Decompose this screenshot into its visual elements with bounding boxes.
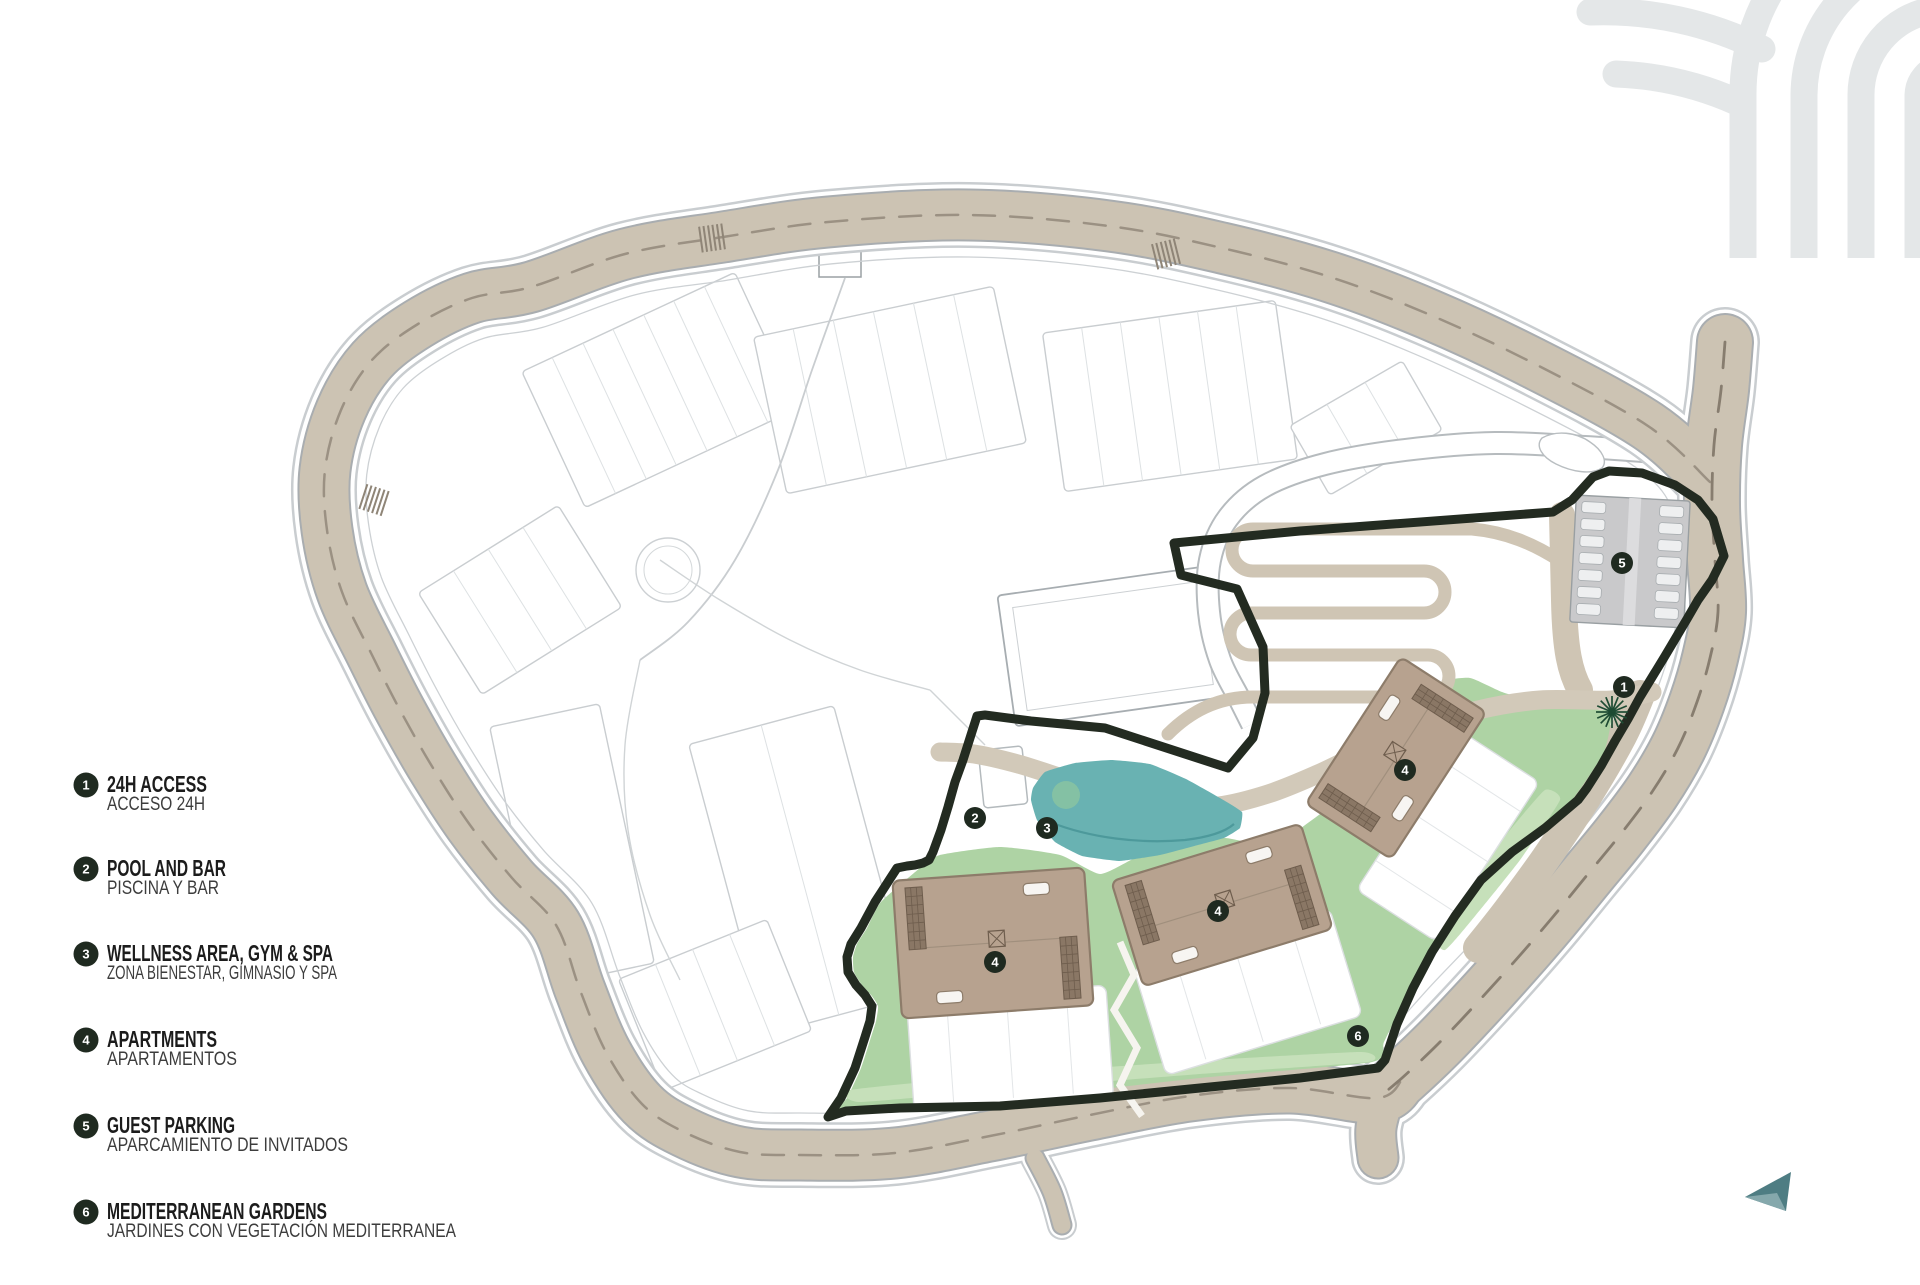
svg-text:5: 5	[82, 1119, 89, 1134]
svg-text:6: 6	[82, 1205, 89, 1220]
svg-text:ACCESO 24H: ACCESO 24H	[107, 793, 205, 815]
svg-text:ZONA BIENESTAR, GIMNASIO Y SPA: ZONA BIENESTAR, GIMNASIO Y SPA	[107, 962, 337, 984]
svg-text:1: 1	[1620, 680, 1627, 695]
svg-text:APARCAMIENTO DE INVITADOS: APARCAMIENTO DE INVITADOS	[107, 1134, 348, 1156]
svg-text:APARTAMENTOS: APARTAMENTOS	[107, 1048, 237, 1070]
svg-text:5: 5	[1618, 556, 1625, 571]
svg-text:2: 2	[82, 862, 89, 877]
svg-text:4: 4	[1401, 763, 1409, 778]
svg-text:PISCINA Y BAR: PISCINA Y BAR	[107, 877, 219, 899]
svg-text:1: 1	[82, 778, 89, 793]
svg-text:JARDINES CON VEGETACIÓN MEDITE: JARDINES CON VEGETACIÓN MEDITERRANEA	[107, 1219, 456, 1242]
svg-text:6: 6	[1354, 1029, 1361, 1044]
svg-text:4: 4	[82, 1033, 90, 1048]
svg-text:4: 4	[991, 955, 999, 970]
svg-text:2: 2	[971, 811, 978, 826]
svg-text:4: 4	[1214, 904, 1222, 919]
svg-text:3: 3	[1043, 821, 1050, 836]
svg-text:3: 3	[82, 947, 89, 962]
